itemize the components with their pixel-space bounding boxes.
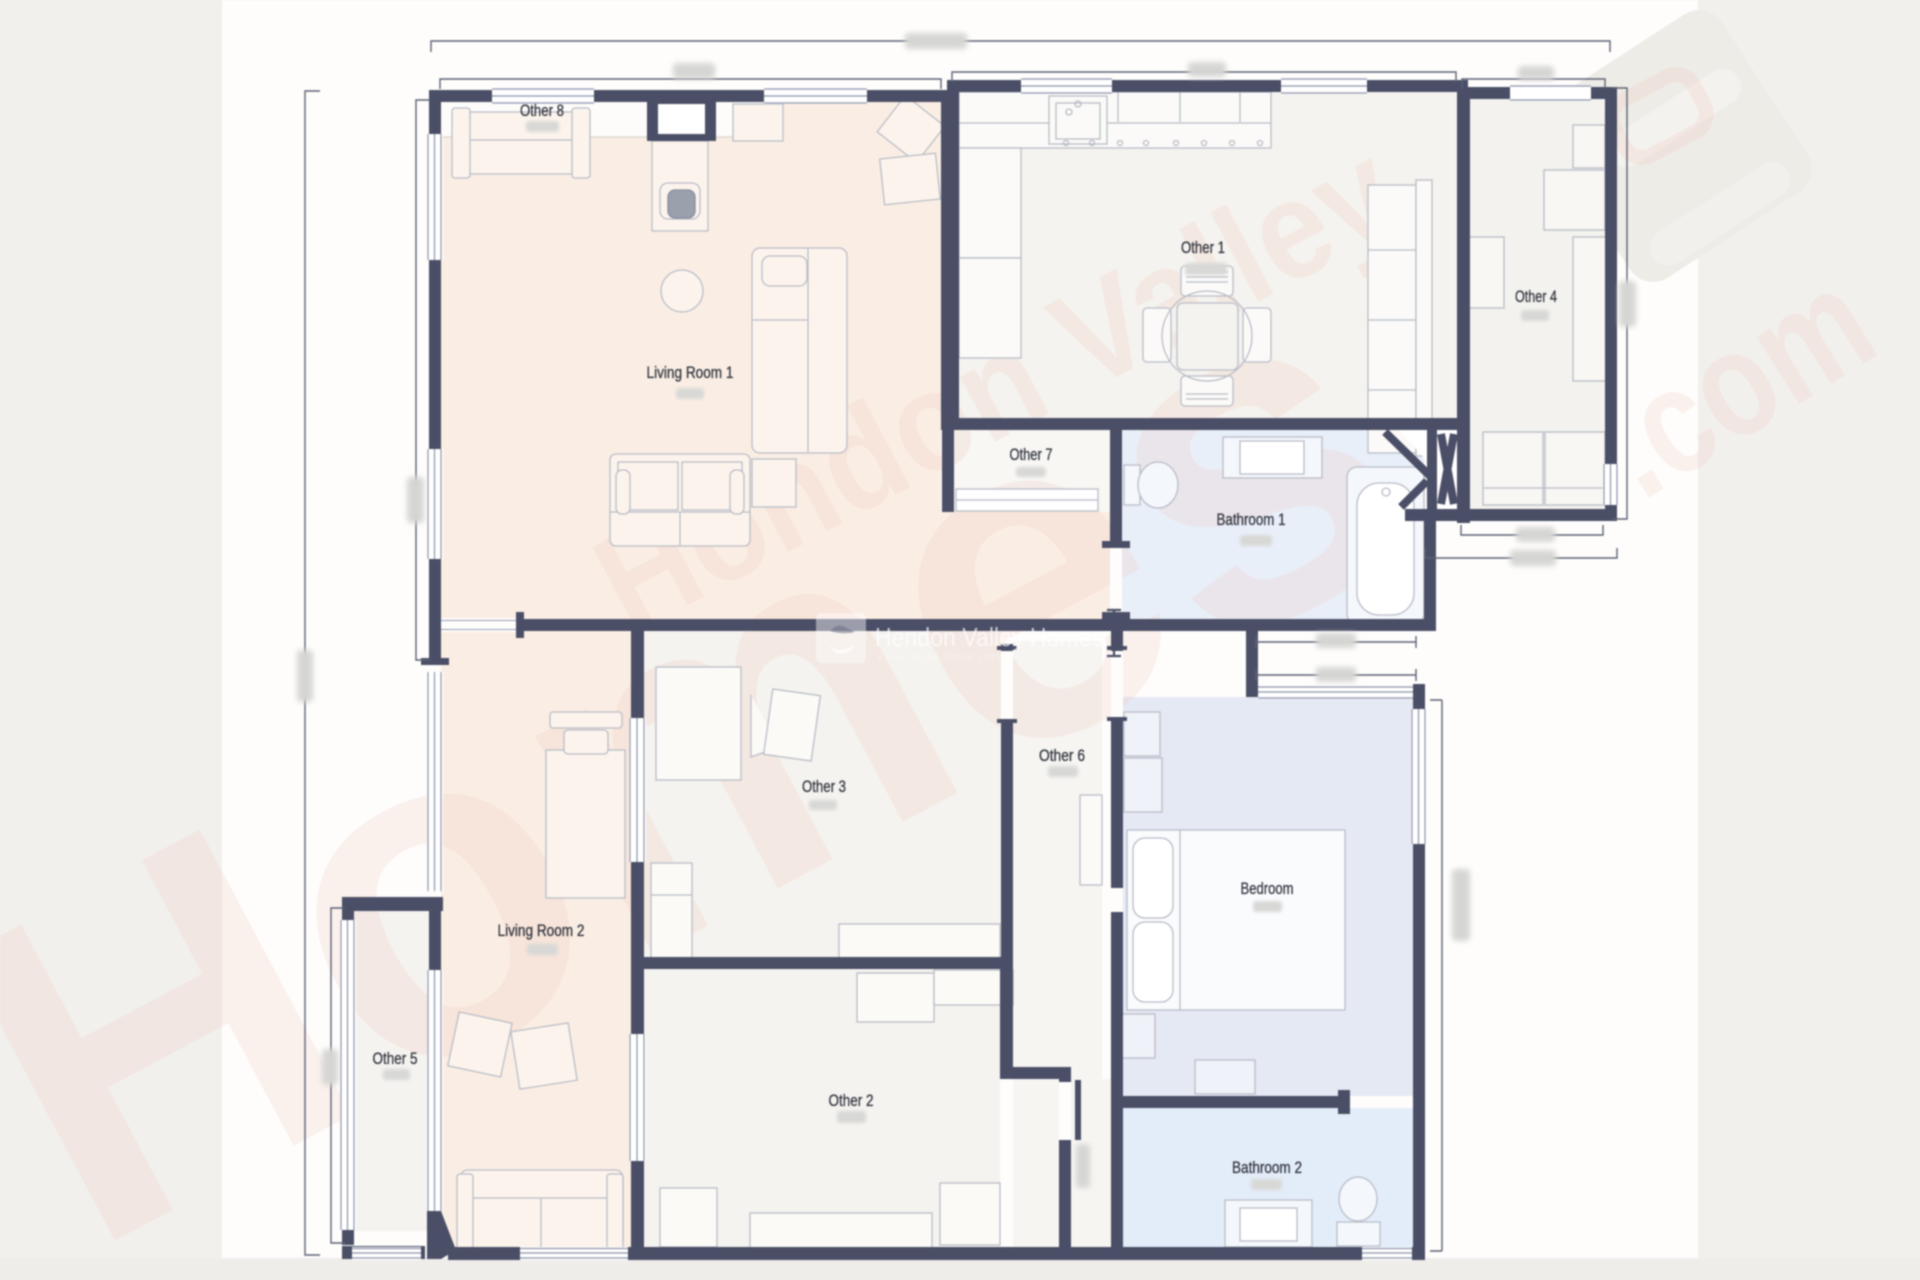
- svg-text:Bathroom 1: Bathroom 1: [1217, 511, 1286, 529]
- svg-text:Other 8: Other 8: [520, 102, 564, 120]
- svg-text:Other 1: Other 1: [1181, 239, 1225, 257]
- svg-text:Other 2: Other 2: [829, 1092, 874, 1110]
- svg-text:Bathroom 2: Bathroom 2: [1232, 1159, 1302, 1177]
- svg-text:Other 6: Other 6: [1039, 747, 1085, 765]
- svg-text:Living Room 1: Living Room 1: [647, 364, 734, 382]
- svg-text:Living Room 2: Living Room 2: [498, 922, 585, 940]
- svg-text:Hendon Valley Homes: Hendon Valley Homes: [875, 622, 1103, 652]
- svg-text:Bedroom: Bedroom: [1241, 880, 1294, 898]
- svg-text:VILLA SALES SINCE 1995: VILLA SALES SINCE 1995: [877, 652, 1001, 662]
- svg-text:Other 5: Other 5: [373, 1050, 418, 1068]
- svg-text:Other 4: Other 4: [1515, 288, 1557, 306]
- svg-text:Other 7: Other 7: [1010, 446, 1053, 464]
- svg-text:Other 3: Other 3: [802, 778, 846, 796]
